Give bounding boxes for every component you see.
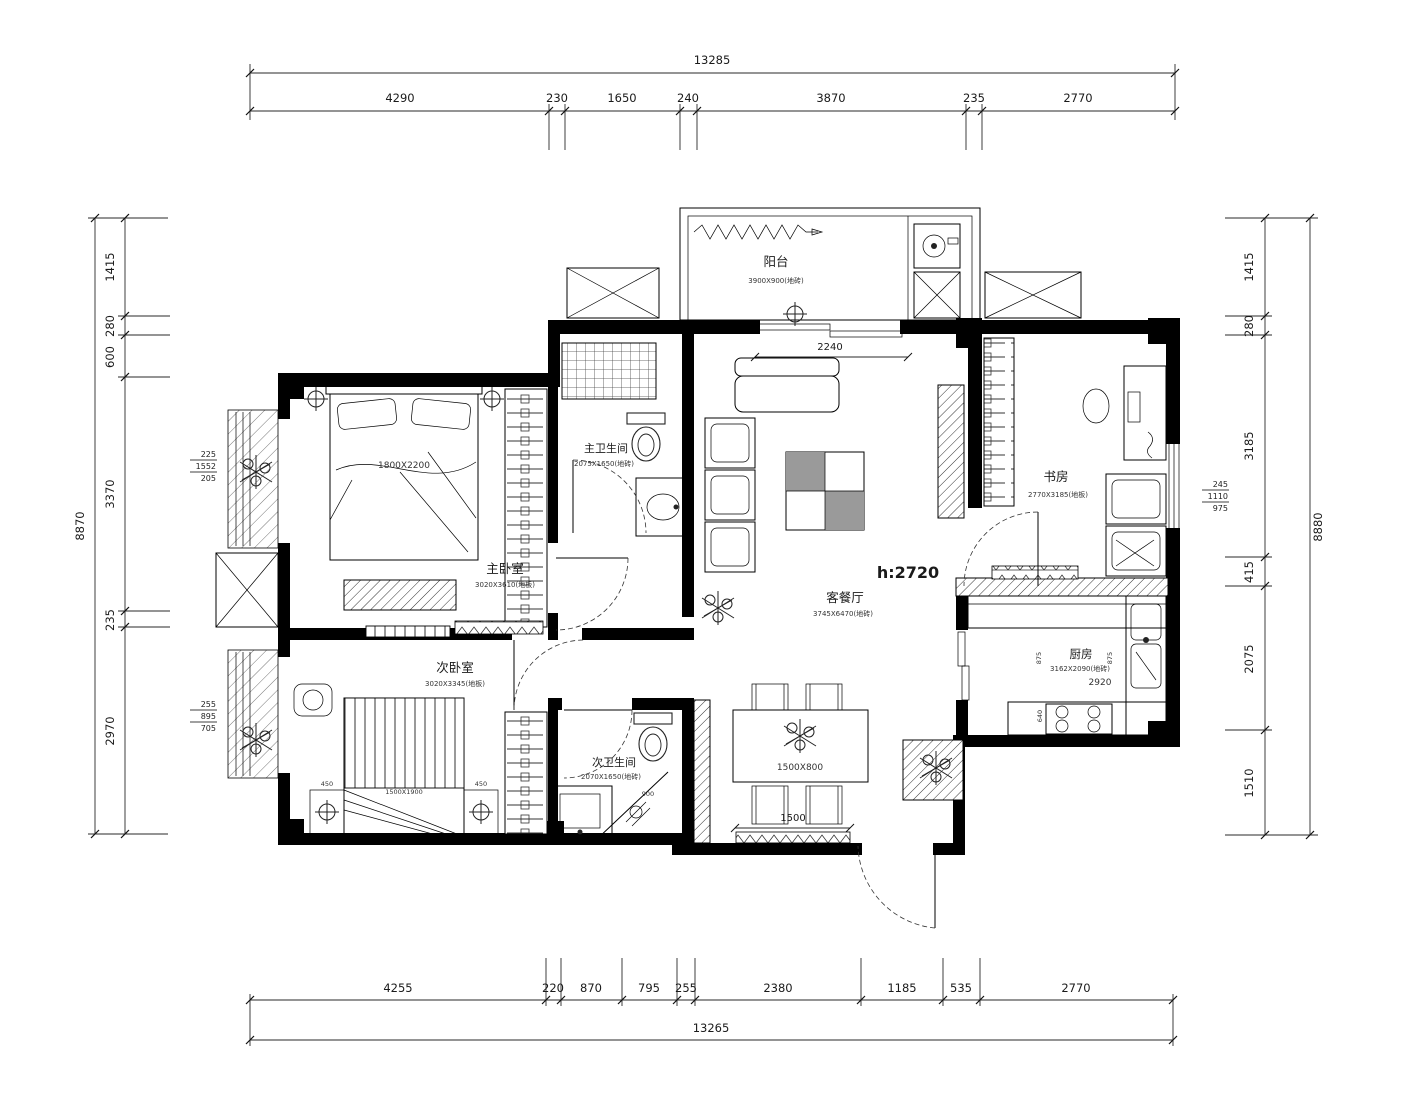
dim-right-seg-2: 3185	[1242, 431, 1256, 460]
svg-text:705: 705	[201, 724, 216, 733]
svg-text:2240: 2240	[817, 342, 842, 353]
study-size: 2770X3185(地板)	[1028, 490, 1088, 499]
dim-left-total: 8870	[73, 511, 87, 540]
dim-top-seg-0: 4290	[385, 91, 414, 105]
window-dim-stack-left-1: 225 1552 205	[190, 450, 217, 483]
vanity	[636, 478, 690, 536]
dim-left-seg-4: 235	[103, 609, 117, 631]
dim-bottom-seg-0: 4255	[383, 981, 412, 995]
bookshelf	[984, 338, 1014, 506]
bed-second	[344, 698, 464, 838]
window-dim-stack-left-2: 255 895 705	[190, 700, 217, 733]
insulation-zigzag	[694, 225, 818, 239]
svg-text:1552: 1552	[196, 462, 216, 471]
living-label: 客餐厅	[826, 590, 864, 605]
lamp-icon	[469, 800, 493, 824]
washing-machine	[914, 272, 960, 318]
living-size: 3745X6470(地砖)	[813, 609, 873, 618]
svg-text:205: 205	[201, 474, 216, 483]
bench	[366, 626, 450, 637]
plant-icon	[784, 719, 816, 753]
bay-window-master: 225 1552 205	[190, 410, 278, 548]
second-bedroom-label: 次卧室	[436, 660, 474, 675]
kitchen-dim-left: 875	[1035, 652, 1043, 664]
living-study-pier-hatched	[938, 385, 964, 518]
bed-master	[330, 394, 478, 560]
room-kitchen: 厨房 3162X2090(地砖) 2920 875 875 640	[958, 596, 1166, 735]
kitchen-label: 厨房	[1070, 647, 1093, 661]
dim-left-seg-3: 3370	[103, 479, 117, 508]
kitchen-top-wall-hatched	[956, 578, 1168, 596]
dim-bottom-seg-7: 535	[950, 981, 972, 995]
dim-top-seg-3: 240	[677, 91, 699, 105]
kitchen-depth: 2920	[1089, 678, 1112, 688]
storage-hatch	[992, 566, 1078, 579]
dim-right-seg-5: 1510	[1242, 768, 1256, 797]
dim-bottom-seg-8: 2770	[1061, 981, 1090, 995]
lamp-icon	[480, 387, 504, 411]
dining-set: 1500X800	[733, 684, 868, 824]
ac-platform-left	[216, 553, 278, 627]
dimension-right: 1415 280 3185 415 2075 1510 8880	[1225, 214, 1325, 839]
dim-bottom-seg-4: 255	[675, 981, 697, 995]
sliding-door	[758, 324, 902, 337]
ceiling-height: h:2720	[877, 563, 939, 582]
shower-dim: 900	[642, 790, 654, 798]
dim-left-seg-0: 1415	[103, 252, 117, 281]
rug	[786, 452, 864, 530]
dining-table-size: 1500X800	[777, 763, 824, 773]
kitchen-sliding-door	[958, 632, 969, 700]
svg-text:225: 225	[201, 450, 216, 459]
dim-bottom-seg-6: 1185	[887, 981, 916, 995]
toilet-icon	[627, 413, 665, 461]
door-arc	[573, 460, 646, 533]
dimension-bottom: 4255 220 870 795 255 2380 1185 535 2770 …	[246, 958, 1177, 1046]
svg-text:255: 255	[201, 700, 216, 709]
room-study: 书房 2770X3185(地板)	[964, 338, 1166, 586]
sink	[1131, 604, 1161, 688]
window-dim-stack-right: 245 1110 975	[1202, 480, 1229, 513]
bath-living-wall-hatched	[694, 700, 710, 843]
dim-bottom-seg-5: 2380	[763, 981, 792, 995]
dim-bottom-seg-1: 220	[542, 981, 564, 995]
dim-right-seg-0: 1415	[1242, 252, 1256, 281]
master-bath-label: 主卫生间	[584, 441, 628, 455]
shaft-boxes	[567, 268, 1081, 318]
dim-top-seg-1: 230	[546, 91, 568, 105]
dim-left-seg-1: 280	[103, 315, 117, 337]
plant-icon	[702, 591, 734, 625]
dresser	[344, 580, 456, 610]
dim-left-seg-2: 600	[103, 346, 117, 368]
dim-bottom-ticks	[246, 996, 1177, 1044]
door-master-bedroom	[556, 558, 628, 630]
wardrobe-master	[505, 389, 547, 627]
master-bedroom-label: 主卧室	[486, 561, 524, 576]
corner-shower	[596, 772, 668, 840]
svg-text:1110: 1110	[1208, 492, 1228, 501]
balcony-size: 3900X900(地砖)	[748, 276, 804, 285]
dim-bottom-seg-3: 795	[638, 981, 660, 995]
lamp-icon	[315, 800, 339, 824]
floor-plan-canvas: 13285 4290 230 1650 240 3870 235 2770 42…	[0, 0, 1412, 1117]
level-marker-icon	[783, 302, 807, 326]
dining-dim: 1500	[731, 813, 854, 832]
dim-bottom-total: 13265	[693, 1021, 730, 1035]
kitchen-dim-door: 640	[1036, 710, 1044, 722]
room-second-bath: 次卫生间 2070X1650(地砖) 900	[552, 710, 672, 841]
dim-top-seg-2: 1650	[607, 91, 636, 105]
lamp-icon	[304, 387, 328, 411]
dim-top-seg-4: 3870	[816, 91, 845, 105]
svg-text:1500: 1500	[780, 813, 805, 824]
window-study: 245 1110 975	[1169, 444, 1229, 528]
threshold-hatch	[455, 621, 543, 634]
room-master-bedroom: 1800X2200 主卧室 3020X3610(地板)	[304, 385, 547, 637]
bed-second-size: 1500X1900	[385, 788, 423, 796]
entry-door	[858, 843, 935, 928]
armchair	[294, 684, 332, 716]
svg-text:245: 245	[1213, 480, 1228, 489]
kitchen-size: 3162X2090(地砖)	[1050, 664, 1110, 673]
dim-right-seg-1: 280	[1242, 315, 1256, 337]
second-bath-size: 2070X1650(地砖)	[581, 772, 641, 781]
toilet-icon	[634, 713, 672, 761]
stove	[1046, 704, 1112, 734]
svg-text:895: 895	[201, 712, 216, 721]
dim-right-total: 8880	[1311, 512, 1325, 541]
bay-window-second: 255 895 705	[190, 650, 278, 778]
dim-left-seg-5: 2970	[103, 716, 117, 745]
doormat	[736, 832, 850, 843]
balcony-label: 阳台	[763, 254, 788, 269]
dim-top-seg-5: 235	[963, 91, 985, 105]
dim-bottom-seg-2: 870	[580, 981, 602, 995]
desk	[1083, 366, 1166, 460]
floor-plan-page: 13285 4290 230 1650 240 3870 235 2770 42…	[0, 0, 1412, 1117]
wardrobe-second	[505, 712, 547, 834]
second-bath-label: 次卫生间	[592, 755, 636, 769]
room-master-bath: 主卫生间 2075X1650(地砖)	[562, 343, 690, 536]
second-bedroom-size: 3020X3345(地板)	[425, 679, 485, 688]
dim-top-total: 13285	[694, 53, 731, 67]
master-bath-size: 2075X1650(地砖)	[574, 459, 634, 468]
nightstand-dim: 450	[475, 780, 487, 788]
dimension-top: 13285 4290 230 1650 240 3870 235 2770	[246, 53, 1179, 150]
shower-floor	[562, 343, 656, 399]
master-bedroom-size: 3020X3610(地板)	[475, 580, 535, 589]
bed-master-size: 1800X2200	[378, 461, 430, 471]
dimension-left: 8870 1415 280 600 3370 235 2970	[73, 214, 170, 838]
room-balcony: 阳台 3900X900(地砖)	[680, 208, 980, 337]
chair	[1083, 389, 1109, 423]
lounge-chairs	[1106, 474, 1166, 576]
dim-right-seg-4: 2075	[1242, 644, 1256, 673]
laundry-sink	[914, 224, 960, 268]
nightstand-dim: 450	[321, 780, 333, 788]
dim-right-seg-3: 415	[1242, 561, 1256, 583]
study-label: 书房	[1043, 469, 1068, 484]
room-second-bedroom: 450 450 1500X1900 次卧室 3020X3345(地板)	[294, 621, 547, 838]
svg-text:975: 975	[1213, 504, 1228, 513]
kitchen-dim-right: 875	[1106, 652, 1114, 664]
dim-top-seg-6: 2770	[1063, 91, 1092, 105]
dim-top-witness	[250, 64, 1175, 150]
